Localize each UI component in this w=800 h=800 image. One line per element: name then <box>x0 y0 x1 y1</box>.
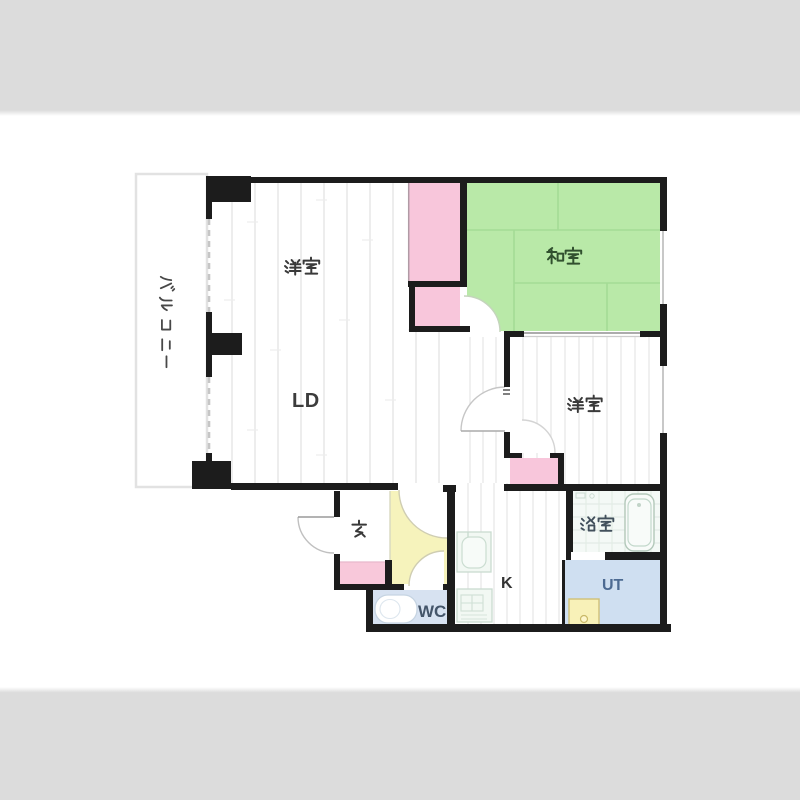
svg-text:K: K <box>501 575 513 592</box>
svg-text:UT: UT <box>602 577 624 594</box>
svg-text:WC: WC <box>418 602 446 621</box>
svg-text:LD: LD <box>292 390 320 412</box>
